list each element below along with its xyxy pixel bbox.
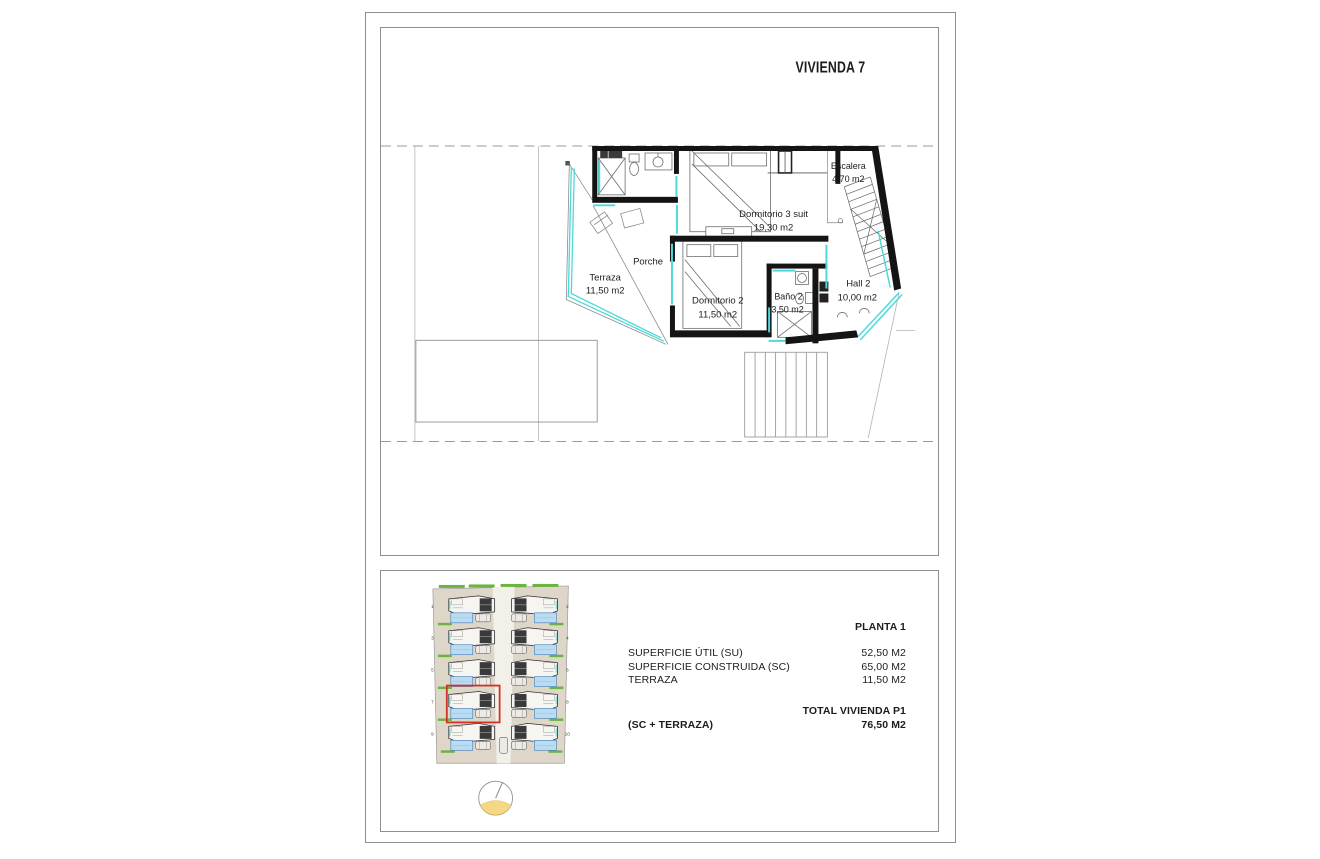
room-label-porche: Porche [633, 257, 663, 268]
room-label-escalera: Escalera [831, 161, 866, 171]
unit-number-7: 7 [431, 699, 434, 704]
room-label-hall2: Hall 2 [846, 279, 870, 290]
site-plan: 1 3 5 7 9 2 4 6 8 10 [431, 584, 570, 763]
floor-plan-panel: VIVIENDA 7 [380, 27, 939, 556]
floor-label: PLANTA 1 [628, 621, 906, 635]
total-value: 76,50 M2 [861, 719, 906, 733]
floor-plan-drawing: VIVIENDA 7 [381, 28, 938, 555]
unit-number-10: 10 [565, 731, 571, 736]
room-area-hall2: 10,00 m2 [838, 292, 877, 303]
room-label-dormitorio3: Dormitorio 3 suit [739, 209, 808, 220]
summary-row-label: TERRAZA [628, 674, 678, 688]
plan-sheet: VIVIENDA 7 [365, 12, 956, 843]
bedroom3-dresser [706, 227, 752, 237]
room-label-terraza: Terraza [589, 273, 621, 284]
terrace-furniture [590, 208, 644, 233]
summary-row-value: 11,50 M2 [862, 674, 906, 688]
room-area-dormitorio3: 19,30 m2 [754, 223, 793, 234]
unit-number-5: 5 [431, 668, 434, 673]
summary-row: SUPERFICIE ÚTIL (SU) 52,50 M2 [628, 647, 906, 661]
unit-number-2: 2 [566, 604, 569, 609]
summary-row-value: 52,50 M2 [861, 647, 906, 661]
pool-outline [416, 340, 597, 422]
summary-row: SUPERFICIE CONSTRUIDA (SC) 65,00 M2 [628, 661, 906, 675]
summary-row-label: SUPERFICIE CONSTRUIDA (SC) [628, 661, 790, 675]
area-summary: PLANTA 1 SUPERFICIE ÚTIL (SU) 52,50 M2 S… [628, 621, 906, 733]
unit-number-9: 9 [431, 731, 434, 736]
room-label-dormitorio2: Dormitorio 2 [692, 295, 743, 306]
room-label-bano2: Baño 2 [774, 291, 802, 301]
total-label: TOTAL VIVIENDA P1 [628, 705, 906, 719]
unit-number-4: 4 [566, 636, 569, 641]
room-area-escalera: 4,70 m2 [832, 174, 864, 184]
total-sublabel: (SC + TERRAZA) [628, 719, 713, 733]
summary-row: TERRAZA 11,50 M2 [628, 674, 906, 688]
hall-arcs [837, 308, 869, 317]
bathroom-top-fixtures [598, 151, 672, 195]
exterior-steps [745, 352, 828, 437]
summary-row-value: 65,00 M2 [861, 661, 906, 675]
unit-number-8: 8 [566, 699, 569, 704]
room-area-bano2: 3,50 m2 [771, 304, 803, 314]
room-area-terraza: 11,50 m2 [586, 285, 625, 296]
bedroom3-closet [768, 151, 828, 173]
unit-number-6: 6 [566, 668, 569, 673]
page-title: VIVIENDA 7 [796, 59, 866, 76]
total-row: (SC + TERRAZA) 76,50 M2 [628, 719, 906, 733]
glazing-lines [593, 161, 902, 341]
summary-row-label: SUPERFICIE ÚTIL (SU) [628, 647, 743, 661]
summary-panel: 1 3 5 7 9 2 4 6 8 10 PL [380, 570, 939, 832]
room-area-dormitorio2: 11,50 m2 [698, 309, 737, 320]
compass-icon [479, 781, 513, 815]
